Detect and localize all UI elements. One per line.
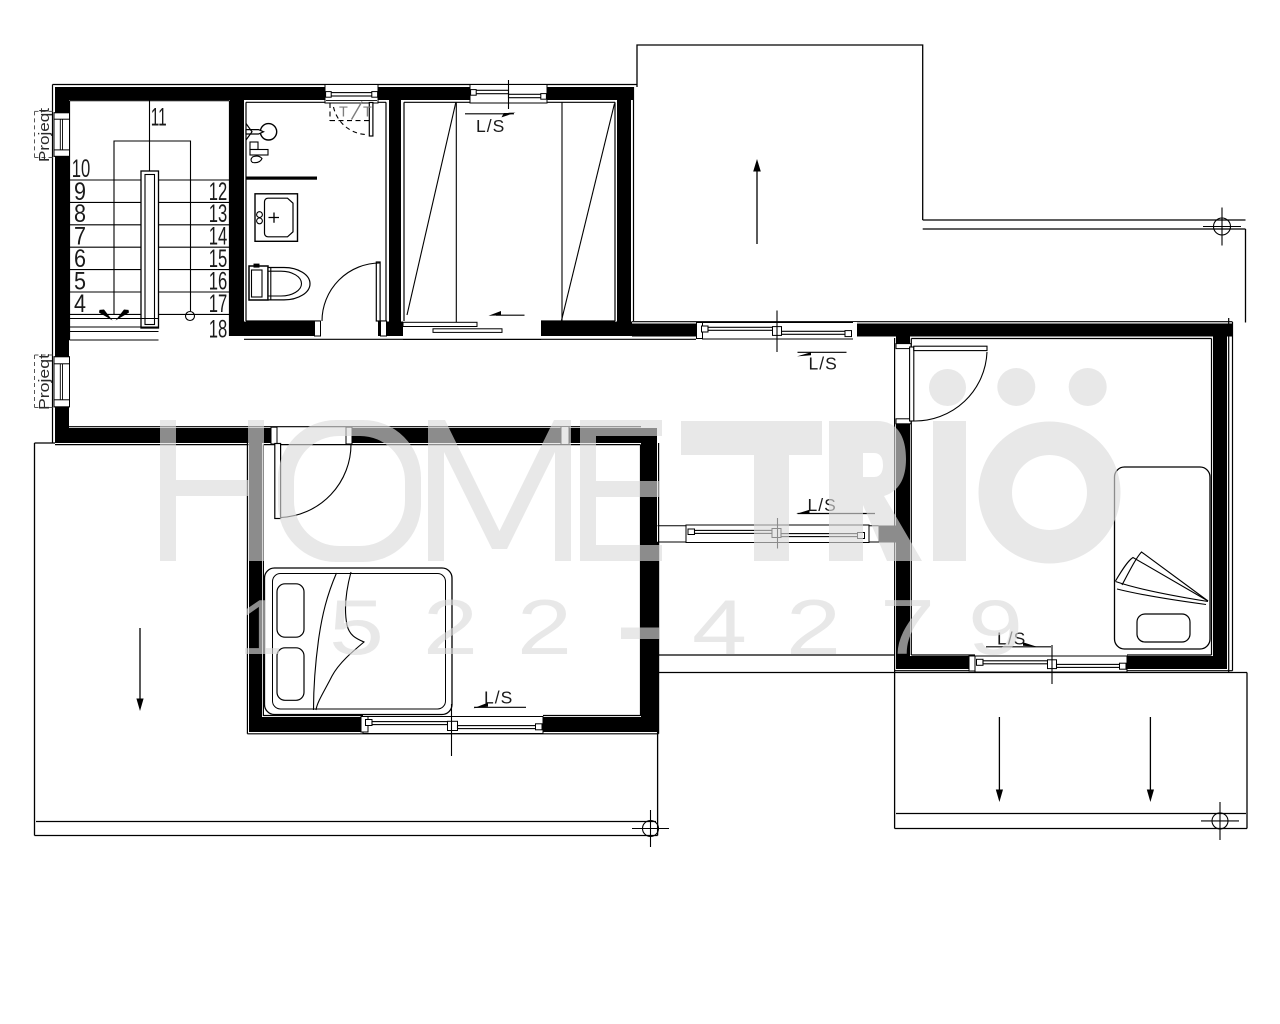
svg-text:2: 2 <box>423 583 478 671</box>
svg-text:2: 2 <box>786 583 841 671</box>
svg-text:18: 18 <box>209 316 228 344</box>
svg-text:11: 11 <box>151 104 167 132</box>
svg-text:Projeqt: Projeqt <box>36 107 53 162</box>
svg-text:T: T <box>363 105 372 121</box>
svg-text:2: 2 <box>517 583 572 671</box>
svg-text:L/S: L/S <box>476 116 505 136</box>
svg-text:9: 9 <box>968 583 1023 671</box>
svg-text:L/S: L/S <box>809 354 838 374</box>
svg-text:T: T <box>339 105 348 121</box>
svg-text:Projeqt: Projeqt <box>36 353 53 410</box>
svg-text:4: 4 <box>692 583 747 671</box>
svg-text:7: 7 <box>880 583 935 671</box>
svg-text:17: 17 <box>209 290 228 318</box>
svg-text:1: 1 <box>239 583 283 671</box>
svg-text:5: 5 <box>329 583 384 671</box>
svg-text:L/S: L/S <box>484 688 513 708</box>
svg-text:4: 4 <box>74 290 86 318</box>
